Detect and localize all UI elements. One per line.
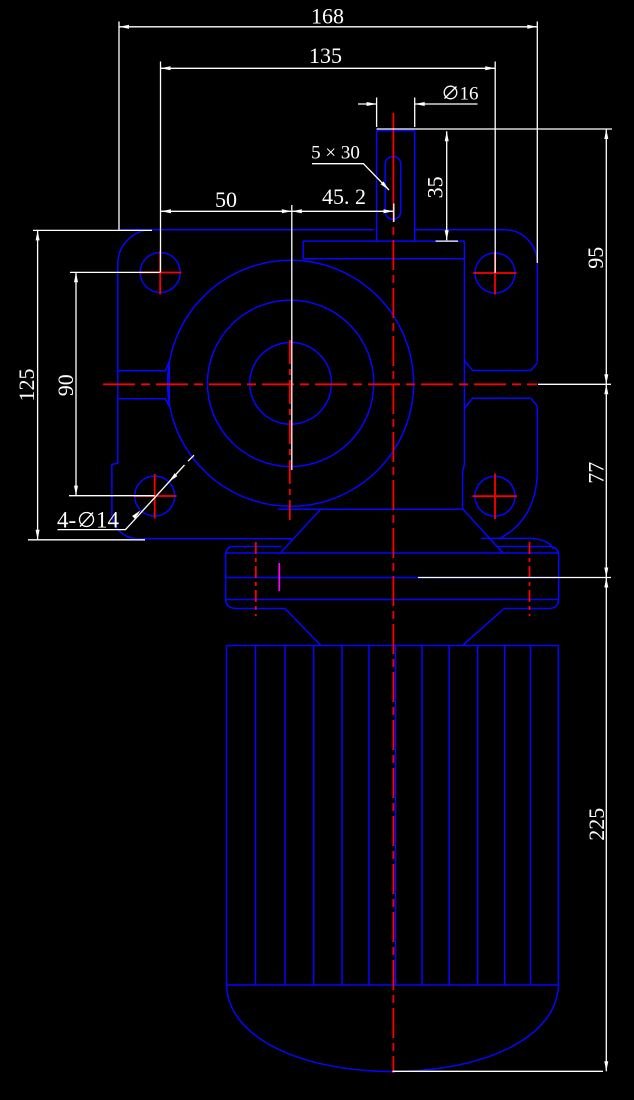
svg-text:135: 135 — [309, 43, 342, 68]
svg-text:90: 90 — [53, 374, 78, 396]
svg-text:225: 225 — [584, 808, 609, 841]
svg-text:35: 35 — [423, 176, 448, 198]
svg-text:95: 95 — [583, 247, 608, 269]
svg-text:50: 50 — [215, 187, 237, 212]
svg-text:16: 16 — [460, 84, 479, 105]
svg-text:168: 168 — [311, 4, 344, 29]
svg-text:14: 14 — [96, 508, 120, 533]
svg-text:4-: 4- — [57, 508, 76, 533]
svg-text:45. 2: 45. 2 — [322, 184, 366, 209]
svg-text:77: 77 — [583, 462, 608, 484]
svg-text:5 × 30: 5 × 30 — [311, 143, 360, 164]
svg-text:125: 125 — [14, 369, 39, 402]
